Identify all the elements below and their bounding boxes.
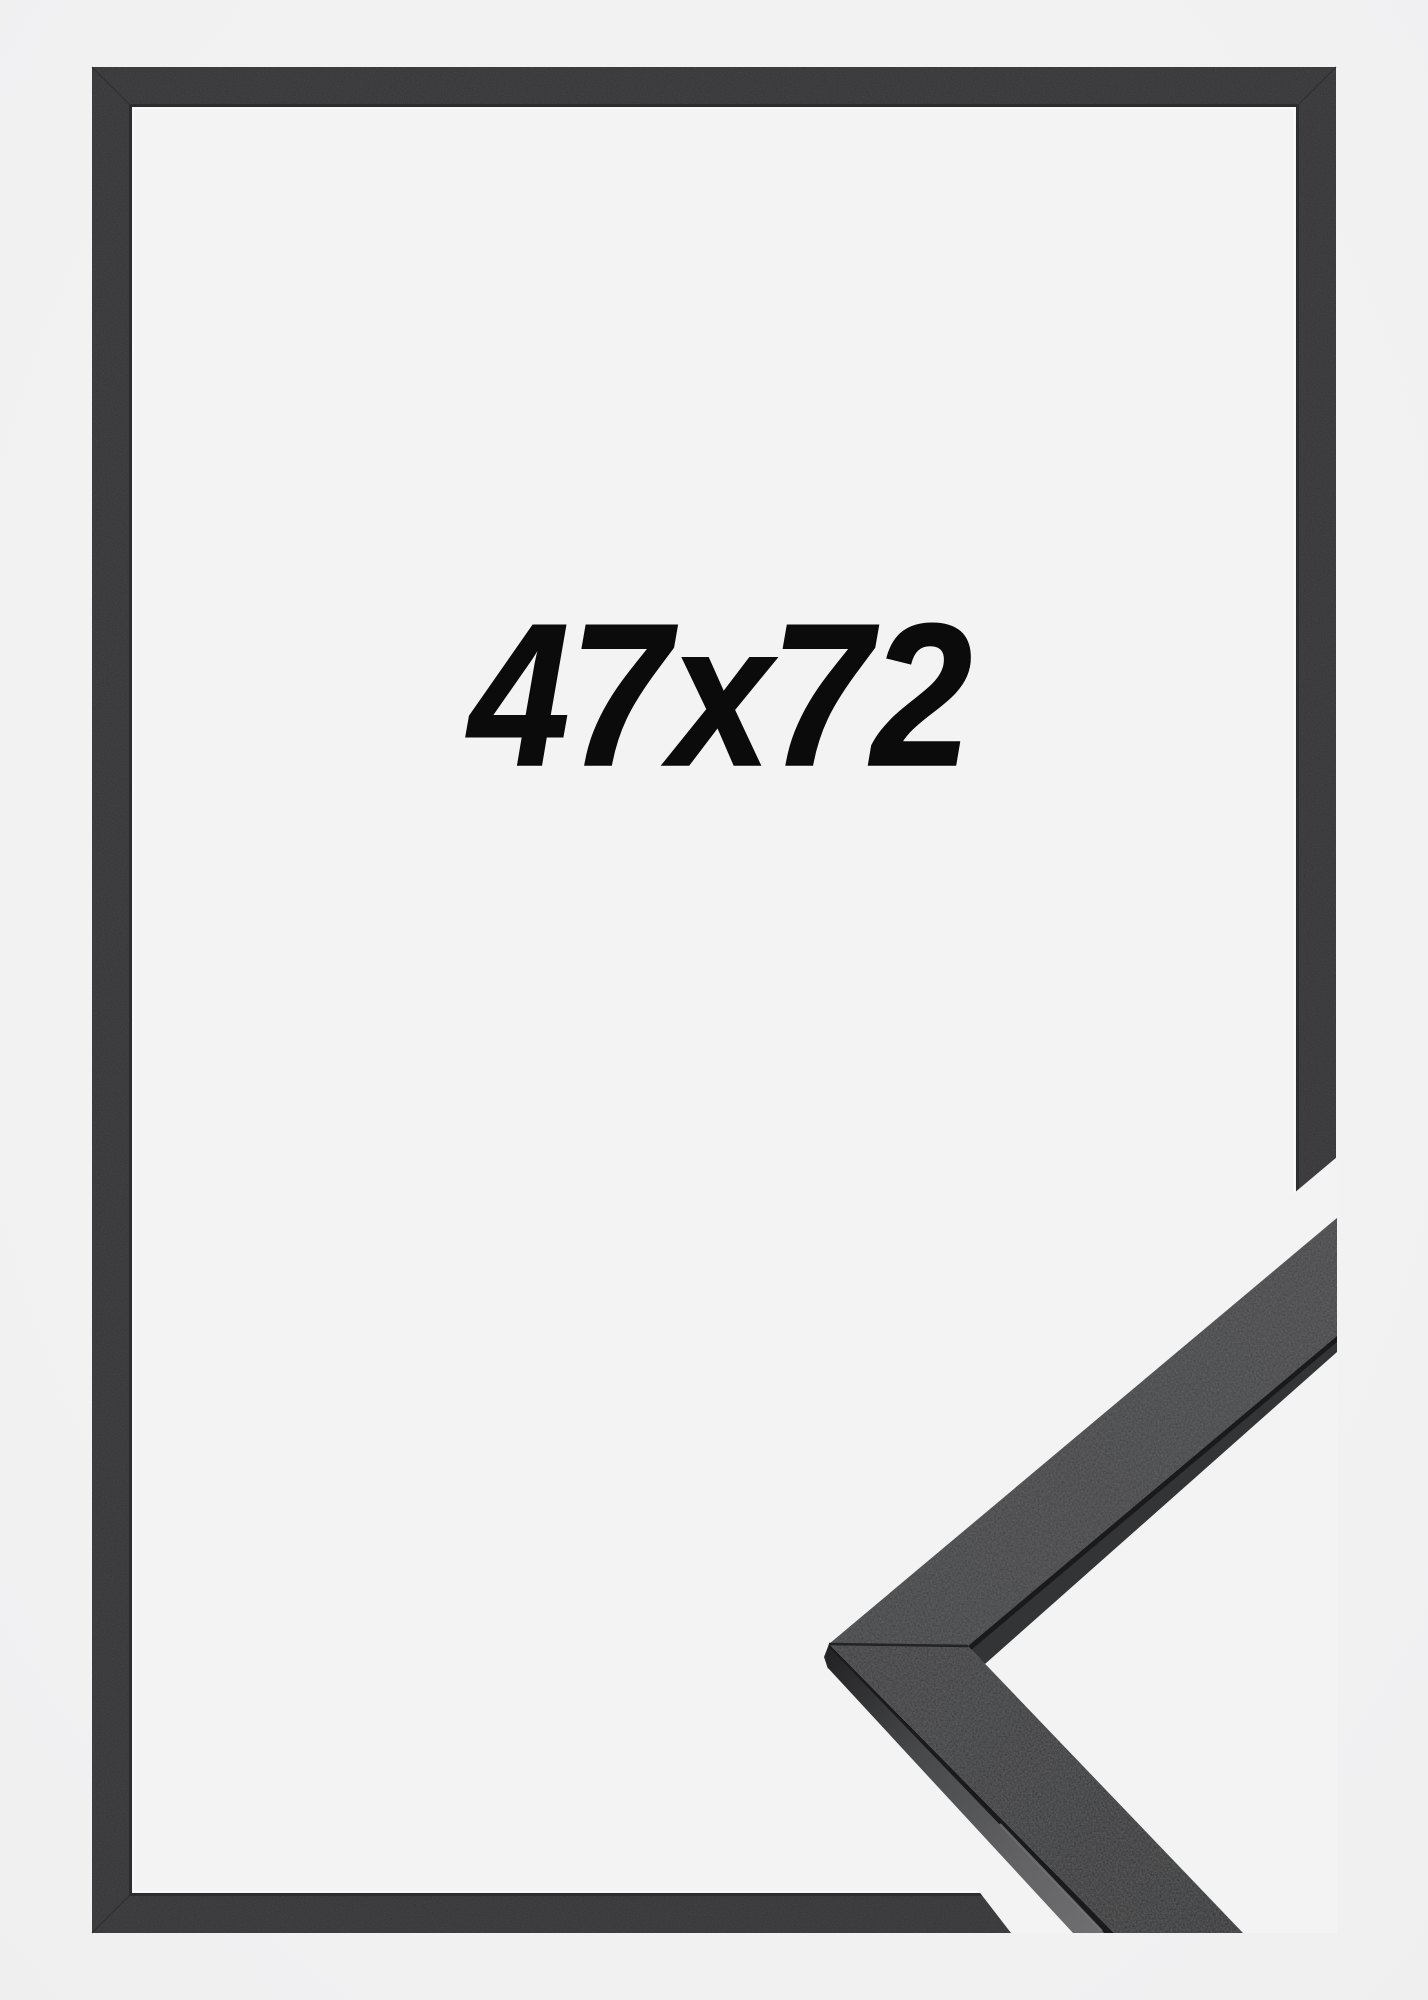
svg-text:47x72: 47x72 [465, 582, 972, 809]
